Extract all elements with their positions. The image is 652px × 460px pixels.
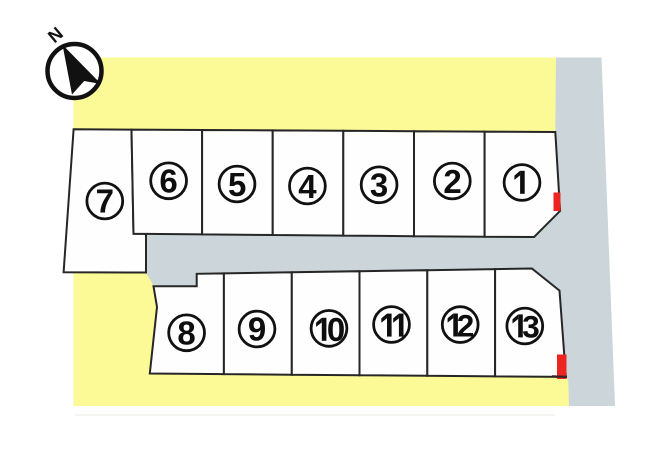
svg-text:2: 2: [443, 163, 461, 200]
svg-text:5: 5: [228, 166, 246, 203]
svg-text:4: 4: [298, 168, 317, 205]
svg-text:2: 2: [457, 308, 475, 344]
svg-text:0: 0: [327, 311, 345, 348]
svg-text:6: 6: [159, 162, 177, 199]
svg-text:8: 8: [177, 314, 195, 351]
svg-text:7: 7: [96, 183, 114, 220]
svg-text:3: 3: [522, 308, 540, 344]
svg-text:9: 9: [248, 311, 266, 348]
svg-text:3: 3: [370, 166, 388, 203]
